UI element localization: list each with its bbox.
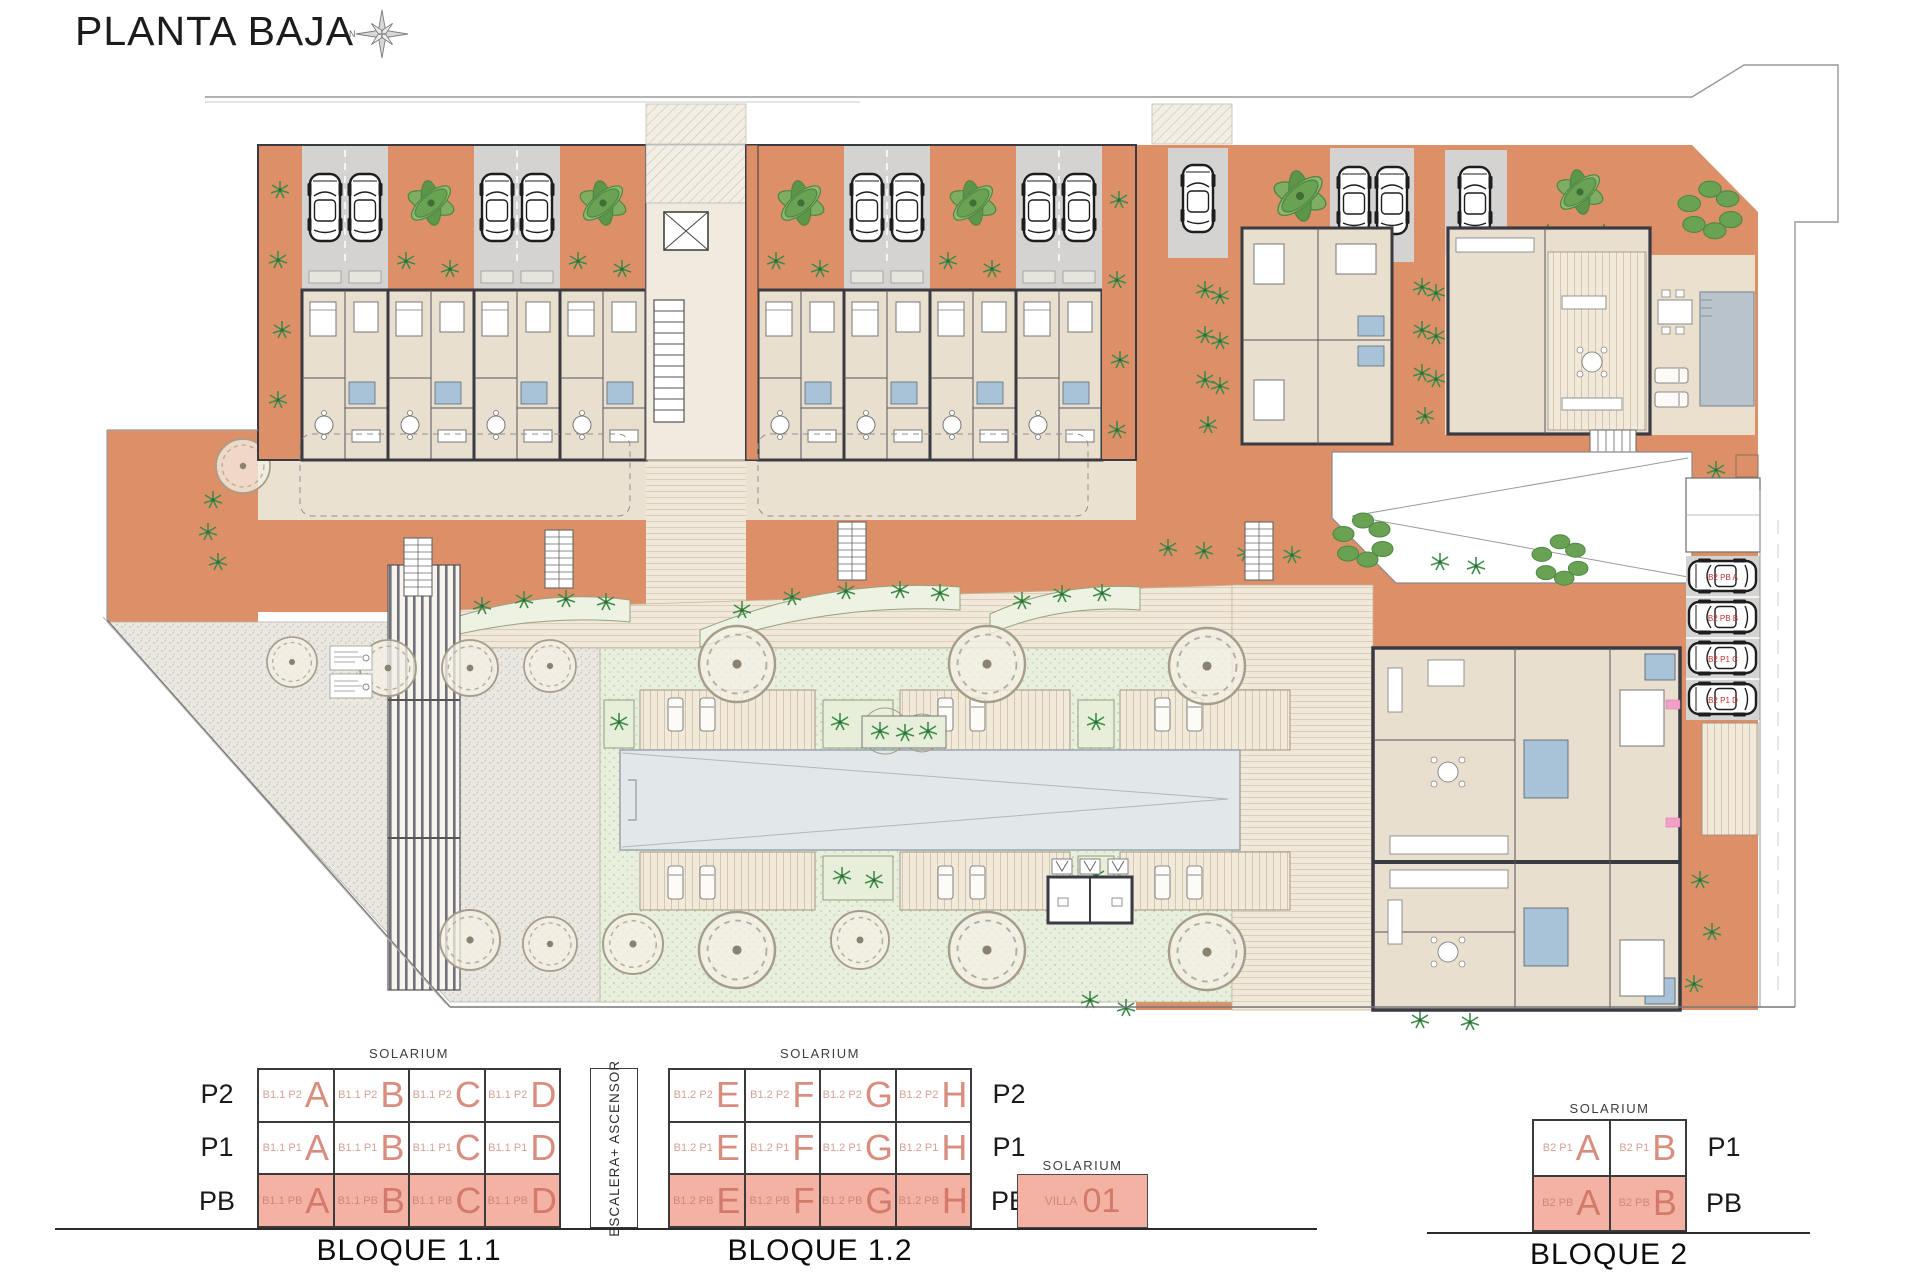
floor-labels-left: P2 P1 PB xyxy=(188,1068,246,1228)
east-parking: B2 PB A B2 PB B B2 P1 C B2 P1 D xyxy=(1686,478,1760,720)
unit-cell: B1.2 P2F xyxy=(745,1069,821,1122)
unit-cell: B1.2 PBE xyxy=(669,1174,745,1227)
floor-label: P1 xyxy=(1697,1119,1751,1176)
bloque-2-caption: BLOQUE 2 xyxy=(1499,1238,1719,1272)
bloque-2-table: B2 P1A B2 P1B B2 PBA B2 PBB xyxy=(1532,1119,1687,1232)
floor-label: P2 xyxy=(188,1068,246,1121)
floor-label: P1 xyxy=(188,1121,246,1174)
parking-label: B2 P1 D xyxy=(1708,696,1738,705)
bloque-1-1-building xyxy=(258,145,646,460)
legend-baseline-left xyxy=(55,1228,1317,1230)
unit-D xyxy=(560,145,646,460)
floor-plan-page: PLANTA BAJA N xyxy=(0,0,1920,1280)
villa-guest-wing xyxy=(1242,228,1392,444)
villa-01-box: VILLA 01 xyxy=(1017,1174,1148,1228)
unit-G xyxy=(930,145,1016,460)
floor-label: PB xyxy=(188,1175,246,1228)
villa-pool xyxy=(1700,292,1754,406)
unit-cell: B2 P1A xyxy=(1533,1120,1610,1176)
parking-label: B2 P1 C xyxy=(1708,655,1738,664)
unit-F xyxy=(844,145,930,460)
unit-cell: B1.2 P1H xyxy=(896,1122,972,1175)
floor-label: PB xyxy=(1697,1176,1751,1233)
path-bloque2 xyxy=(1232,585,1373,1010)
unit-cell: B2 PBA xyxy=(1533,1176,1610,1232)
unit-cell: B2 PBB xyxy=(1610,1176,1687,1232)
unit-cell: B1.1 P1A xyxy=(258,1122,334,1175)
unit-cell: B1.1 PBC xyxy=(409,1174,485,1227)
unit-cell: B1.2 P2E xyxy=(669,1069,745,1122)
bloque-1-2-building xyxy=(746,145,1136,460)
stairs-icon xyxy=(654,300,684,422)
escalera-ascensor-box: ESCALERA+ ASCENSOR xyxy=(590,1068,638,1228)
bloque-1-2-caption: BLOQUE 1.2 xyxy=(668,1234,972,1268)
solarium-label-villa: SOLARIUM xyxy=(1017,1158,1148,1173)
bloque-1-2-table: B1.2 P2E B1.2 P2F B1.2 P2G B1.2 P2H B1.2… xyxy=(668,1068,972,1228)
unit-E xyxy=(758,145,844,460)
unit-cell: B1.2 P1E xyxy=(669,1122,745,1175)
unit-cell: B1.2 P1F xyxy=(745,1122,821,1175)
deck-platforms-bottom xyxy=(640,852,1290,910)
unit-B xyxy=(388,145,474,460)
site-plan: B2 PB A B2 PB B B2 P1 C B2 P1 D xyxy=(0,0,1920,1030)
unit-cell: B1.1 PBB xyxy=(334,1174,410,1227)
escalera-label: ESCALERA+ ASCENSOR xyxy=(607,1060,622,1237)
solarium-label-b12: SOLARIUM xyxy=(668,1046,972,1061)
villa-name: VILLA xyxy=(1045,1194,1078,1208)
solarium-label-b2: SOLARIUM xyxy=(1532,1101,1687,1116)
unit-H xyxy=(1016,145,1102,460)
unit-cell: B1.1 P1B xyxy=(334,1122,410,1175)
bloque-2-building xyxy=(1373,648,1680,1010)
unit-tag xyxy=(1666,818,1680,827)
floor-label: P2 xyxy=(980,1068,1038,1121)
unit-cell: B1.2 PBH xyxy=(896,1174,972,1227)
villa-number: 01 xyxy=(1082,1184,1120,1218)
unit-cell: B1.1 PBD xyxy=(485,1174,561,1227)
villa-south-stairs xyxy=(1590,430,1636,454)
unit-cell: B1.1 P2A xyxy=(258,1069,334,1122)
unit-cell: B1.1 P2C xyxy=(409,1069,485,1122)
driveway xyxy=(1332,452,1692,583)
solarium-label-b11: SOLARIUM xyxy=(257,1046,561,1061)
parking-label: B2 PB A xyxy=(1708,573,1738,582)
stair-core xyxy=(646,145,746,460)
pool-wc-block xyxy=(1048,859,1132,923)
unit-C xyxy=(474,145,560,460)
unit-cell: B1.1 P2B xyxy=(334,1069,410,1122)
unit-cell: B1.2 PBG xyxy=(820,1174,896,1227)
villa-main-house xyxy=(1448,228,1650,434)
unit-cell: B1.1 P2D xyxy=(485,1069,561,1122)
unit-cell: B1.2 P2H xyxy=(896,1069,972,1122)
unit-cell: B1.2 P1G xyxy=(820,1122,896,1175)
unit-cell: B2 P1B xyxy=(1610,1120,1687,1176)
parking-label: B2 PB B xyxy=(1708,614,1738,623)
floor-labels-b2: P1 PB xyxy=(1697,1119,1751,1232)
unit-cell: B1.1 P1C xyxy=(409,1122,485,1175)
unit-A xyxy=(302,145,388,460)
unit-cell: B1.1 PBA xyxy=(258,1174,334,1227)
unit-cell: B1.1 P1D xyxy=(485,1122,561,1175)
legend-baseline-right xyxy=(1427,1232,1810,1234)
swimming-pool xyxy=(620,750,1240,850)
unit-cell: B1.2 P2G xyxy=(820,1069,896,1122)
bloque-1-1-table: B1.1 P2A B1.1 P2B B1.1 P2C B1.1 P2D B1.1… xyxy=(257,1068,561,1228)
unit-tag xyxy=(1666,700,1680,709)
bloque-1-1-caption: BLOQUE 1.1 xyxy=(257,1234,561,1268)
unit-cell: B1.2 PBF xyxy=(745,1174,821,1227)
